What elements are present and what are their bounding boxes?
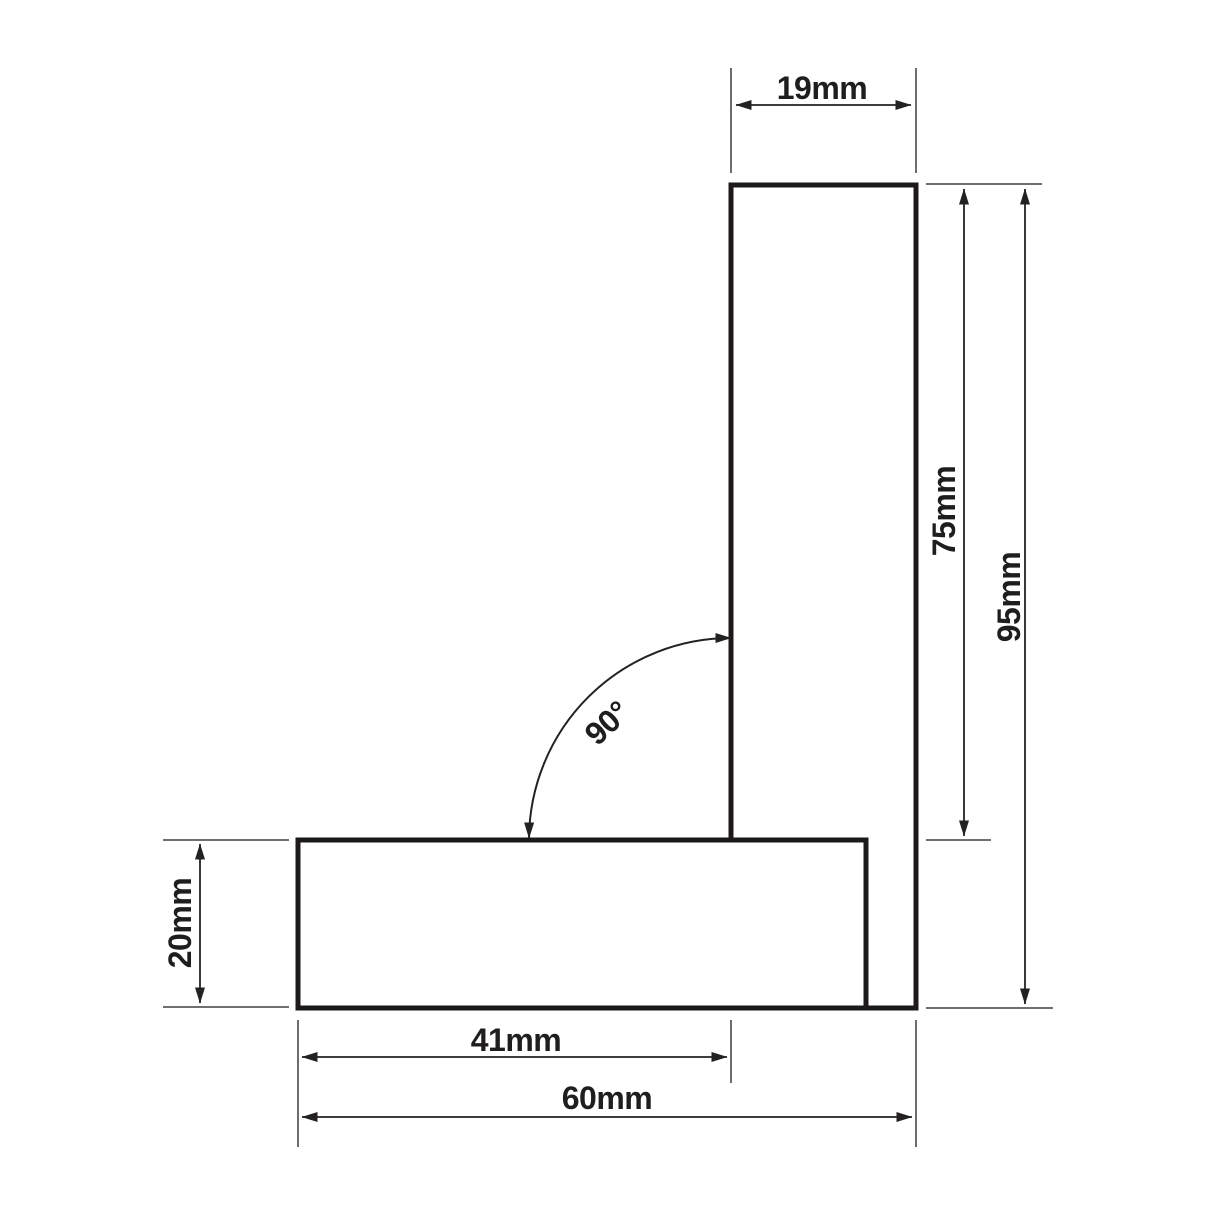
dimension-lines: [200, 105, 1025, 1117]
inner-width-label: 41mm: [471, 1022, 562, 1058]
angle-label: 90°: [578, 694, 637, 752]
dimension-labels: 19mm 75mm 95mm 20mm 41mm 60mm 90°: [162, 70, 1027, 1116]
stock-length-label: 60mm: [562, 1080, 653, 1116]
blade-width-label: 19mm: [777, 70, 868, 106]
stock-thickness-label: 20mm: [162, 878, 198, 969]
dimension-drawing: 19mm 75mm 95mm 20mm 41mm 60mm 90°: [0, 0, 1214, 1214]
part-outline: [298, 185, 916, 1008]
overall-height-label: 95mm: [991, 552, 1027, 643]
angle-arc: [529, 638, 731, 838]
drawing-canvas: 19mm 75mm 95mm 20mm 41mm 60mm 90°: [0, 0, 1214, 1214]
blade-length-label: 75mm: [926, 466, 962, 557]
